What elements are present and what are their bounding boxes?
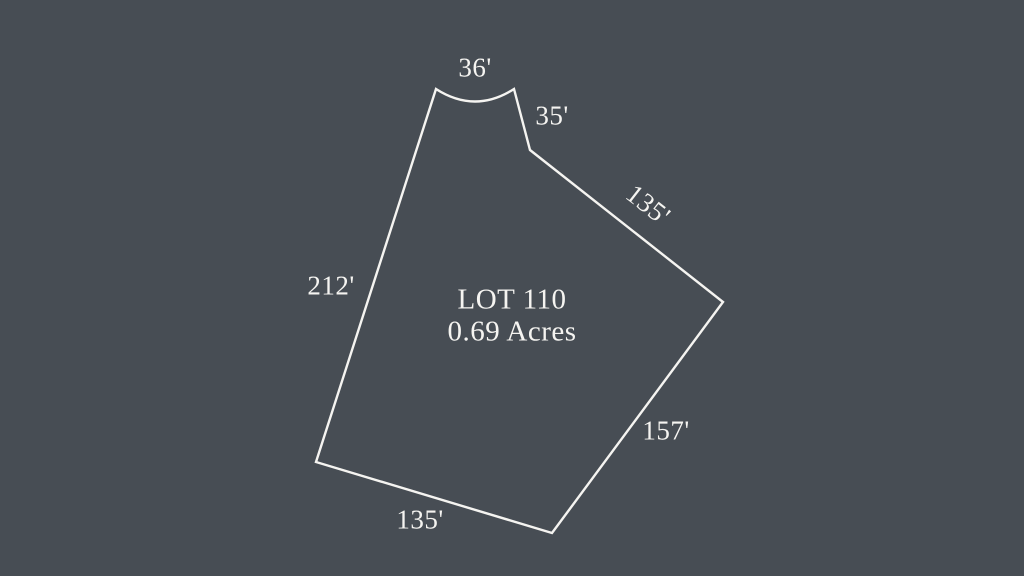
lot-title: LOT 110 [447,284,576,316]
lot-label: LOT 110 0.69 Acres [447,284,576,349]
plat-diagram: 36' 35' 135' 212' 157' 135' LOT 110 0.69… [0,0,1024,576]
lot-area: 0.69 Acres [447,316,576,348]
dimension-label-west-212: 212' [307,271,354,302]
dimension-label-south-135: 135' [396,505,443,536]
dimension-label-southeast-157: 157' [642,416,689,447]
dimension-label-top-36: 36' [458,53,491,84]
dimension-label-upper-right-35: 35' [535,101,568,132]
